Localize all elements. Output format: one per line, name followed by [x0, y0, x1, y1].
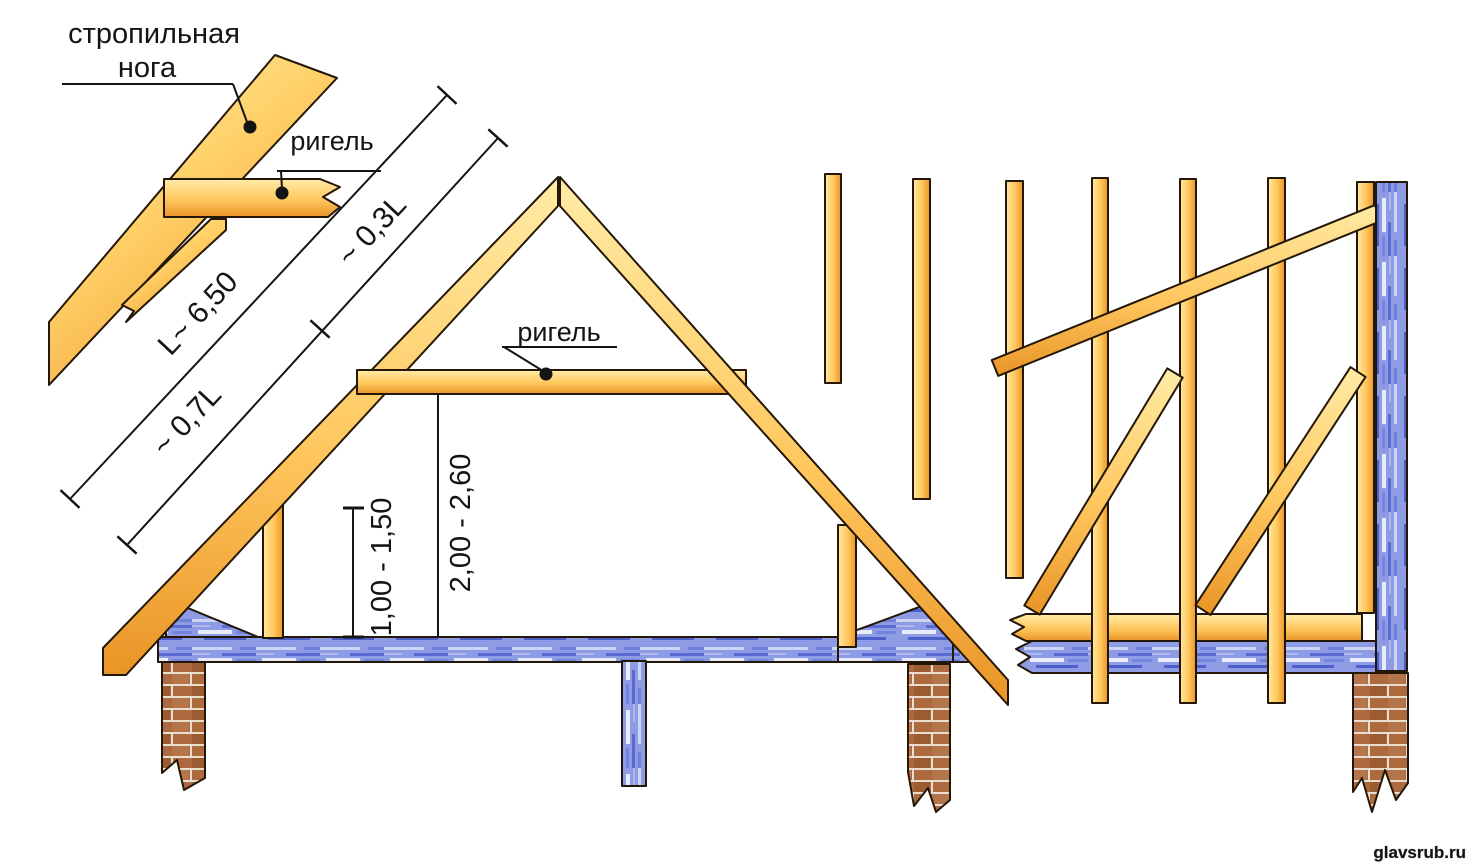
corner-stud [1357, 182, 1374, 613]
rafter-right [560, 177, 1008, 705]
loose-stud-1 [825, 174, 841, 383]
rafter-system-diagram: стропильная нога ригель L~ 6,50 ~ 0,7L ~… [0, 0, 1470, 862]
label-rafter-leg-line1: стропильная [68, 18, 240, 50]
dim-label-upper-segment: ~ 0,3L [331, 188, 413, 272]
leader-line-collar-detail [281, 171, 282, 189]
dim-tick-middle [310, 320, 329, 337]
wall-stud-1 [1092, 178, 1108, 703]
brick-pier-corner [1353, 673, 1408, 812]
loose-stud-2 [913, 179, 930, 499]
floor-post [622, 661, 646, 786]
watermark-text: glavsrub.ru [1373, 843, 1466, 862]
marker-dot-collar-detail [276, 187, 289, 200]
detail-view: стропильная нога ригель [49, 18, 381, 385]
brick-pier-left [162, 655, 205, 790]
construction-diagram-page: стропильная нога ригель L~ 6,50 ~ 0,7L ~… [0, 0, 1470, 862]
brick-pier-right [908, 664, 950, 812]
label-collar-main: ригель [517, 317, 600, 347]
label-rafter-leg-line2: нога [118, 52, 177, 84]
dim-label-collar-height: 2,00 - 2,60 [445, 454, 477, 593]
watermark: glavsrub.ru [1373, 843, 1466, 862]
collar-tie-detail-beam [164, 179, 340, 217]
main-truss-section: ригель 1,00 - 1,50 2,00 - 2,60 [103, 177, 1008, 812]
label-collar-detail: ригель [290, 126, 373, 156]
knee-wall-post-right [838, 525, 856, 647]
corner-board [1376, 182, 1407, 671]
dim-label-knee-wall: 1,00 - 1,50 [366, 498, 398, 637]
wall-stud-2 [1180, 179, 1196, 703]
marker-dot-rafter-leg [244, 121, 257, 134]
leader-line-collar-main [504, 347, 543, 371]
dim-label-lower-segment: ~ 0,7L [146, 378, 228, 462]
loose-stud-3 [1006, 181, 1023, 578]
marker-dot-collar-main [540, 368, 553, 381]
